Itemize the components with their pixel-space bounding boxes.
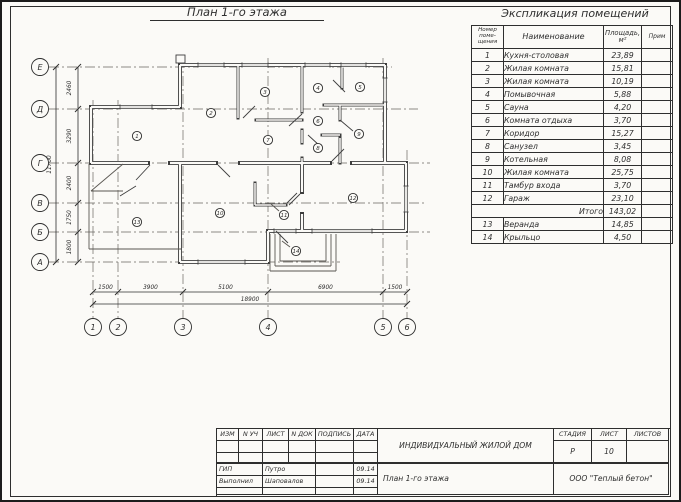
- room-name-cell: Гараж: [504, 192, 604, 205]
- dim-col-total: 18900: [241, 297, 260, 303]
- tb-empty: [354, 488, 378, 495]
- tb-empty: [354, 441, 378, 453]
- dim-col-3: 6900: [318, 285, 333, 291]
- tb-empty: [239, 453, 263, 463]
- room-number-cell: 10: [472, 166, 504, 179]
- dim-row-3: 1750: [67, 210, 73, 225]
- room-note-cell: [642, 218, 673, 231]
- room-name-cell: Жилая комната: [504, 62, 604, 75]
- room-name-cell: Жилая комната: [504, 166, 604, 179]
- room-number-cell: 6: [472, 114, 504, 127]
- dim-row-1: 3290: [67, 128, 73, 143]
- room-note-cell: [642, 101, 673, 114]
- tb-sheet-value: 10: [592, 441, 627, 463]
- axis-label-col: 4: [265, 323, 270, 332]
- room-note-cell: [642, 140, 673, 153]
- explication-row: 9Котельная8,08: [472, 153, 673, 166]
- room-number: 12: [350, 196, 357, 202]
- room-area-cell: 3,45: [604, 140, 642, 153]
- tb-empty: [316, 453, 354, 463]
- room-number: 2: [209, 111, 213, 117]
- room-name-cell: Веранда: [504, 218, 604, 231]
- room-name-cell: Коридор: [504, 127, 604, 140]
- tb-sheets-value: [627, 441, 669, 463]
- room-note-cell: [642, 153, 673, 166]
- tb-date-2: 09.14: [354, 476, 378, 488]
- room-number: 7: [266, 138, 270, 144]
- room-name-cell: Котельная: [504, 153, 604, 166]
- dimensions: 2460329024001750180011700150039005100690…: [47, 64, 410, 307]
- header-room-number: Номер поме- щения: [472, 26, 504, 49]
- tb-empty: [263, 453, 289, 463]
- room-area-cell: 3,70: [604, 179, 642, 192]
- tb-date-1: 09.14: [354, 463, 378, 476]
- room-area-cell: 5,88: [604, 88, 642, 101]
- room-number-cell: 9: [472, 153, 504, 166]
- room-note-cell: [642, 114, 673, 127]
- tb-empty: [316, 441, 354, 453]
- tb-role-2: Выполнил: [217, 476, 263, 488]
- room-area-cell: 14,85: [604, 218, 642, 231]
- title-block: ИЗМ N УЧ ЛИСТ N ДОК ПОДПИСЬ ДАТА ИНДИВИД…: [216, 428, 671, 497]
- tb-col-izm: ИЗМ: [217, 429, 239, 441]
- tb-col-sheets: ЛИСТОВ: [627, 429, 669, 441]
- room-area-cell: 15,81: [604, 62, 642, 75]
- room-number: 5: [358, 85, 362, 91]
- axis-label-row: Г: [38, 159, 43, 168]
- explication-total-row: Итого143,02: [472, 205, 673, 218]
- axis-label-row: Б: [37, 228, 43, 237]
- room-area-cell: 4,50: [604, 231, 642, 244]
- explication-row: 1Кухня-столовая23,89: [472, 49, 673, 62]
- explication-title: Экспликация помещений: [478, 7, 672, 20]
- room-number-cell: 3: [472, 75, 504, 88]
- room-number: 13: [134, 220, 141, 226]
- total-label: Итого: [472, 205, 604, 218]
- tb-col-podpis: ПОДПИСЬ: [316, 429, 354, 441]
- room-note-cell: [642, 62, 673, 75]
- explication-row: 3Жилая комната10,19: [472, 75, 673, 88]
- tb-sign-1: [316, 463, 354, 476]
- room-number: 1: [135, 134, 139, 140]
- tb-empty: [263, 488, 316, 495]
- tb-col-sheet: ЛИСТ: [592, 429, 627, 441]
- tb-col-ndok: N ДОК: [289, 429, 316, 441]
- room-number: 3: [263, 90, 267, 96]
- room-number-cell: 5: [472, 101, 504, 114]
- room-name-cell: Тамбур входа: [504, 179, 604, 192]
- axis-label-col: 2: [115, 323, 120, 332]
- room-number: 4: [316, 86, 320, 92]
- explication-row: 6Комната отдыха3,70: [472, 114, 673, 127]
- tb-name-2: Шаповалов: [263, 476, 316, 488]
- room-area-cell: 4,20: [604, 101, 642, 114]
- room-area-cell: 10,19: [604, 75, 642, 88]
- tb-col-stage: СТАДИЯ: [554, 429, 592, 441]
- room-name-cell: Санузел: [504, 140, 604, 153]
- room-note-cell: [642, 49, 673, 62]
- room-name-cell: Кухня-столовая: [504, 49, 604, 62]
- explication-row: 7Коридор15,27: [472, 127, 673, 140]
- tb-empty: [263, 441, 289, 453]
- axis-label-row: А: [36, 258, 42, 267]
- tb-empty: [217, 453, 239, 463]
- room-note-cell: [642, 192, 673, 205]
- tb-stage-value: Р: [554, 441, 592, 463]
- room-area-cell: 3,70: [604, 114, 642, 127]
- tb-empty: [239, 441, 263, 453]
- room-name-cell: Сауна: [504, 101, 604, 114]
- axis-label-col: 3: [180, 323, 185, 332]
- tb-empty: [316, 488, 354, 495]
- tb-empty: [289, 441, 316, 453]
- room-number: 11: [281, 213, 288, 219]
- room-name-cell: Жилая комната: [504, 75, 604, 88]
- explication-row: 13Веранда14,85: [472, 218, 673, 231]
- room-note-cell: [642, 231, 673, 244]
- room-area-cell: 23,89: [604, 49, 642, 62]
- axis-label-row: В: [37, 199, 43, 208]
- tb-project-name: ИНДИВИДУАЛЬНЫЙ ЖИЛОЙ ДОМ: [378, 429, 554, 463]
- tb-col-data: ДАТА: [354, 429, 378, 441]
- explication-row: 11Тамбур входа3,70: [472, 179, 673, 192]
- room-number: 10: [217, 211, 224, 217]
- explication-row: 2Жилая комната15,81: [472, 62, 673, 75]
- tb-sign-2: [316, 476, 354, 488]
- tb-empty: [289, 453, 316, 463]
- room-note-cell: [642, 75, 673, 88]
- tb-empty: [354, 453, 378, 463]
- dim-row-0: 2460: [67, 80, 73, 95]
- tb-role-1: ГИП: [217, 463, 263, 476]
- explication-table: Номер поме- щения Наименование Площадь, …: [471, 25, 673, 244]
- axis-label-col: 1: [90, 323, 95, 332]
- tb-sheet-title: План 1-го этажа: [378, 463, 554, 495]
- axis-label-row: Д: [36, 105, 43, 114]
- room-number-cell: 2: [472, 62, 504, 75]
- tb-company: ООО "Теплый бетон": [554, 463, 669, 495]
- axis-label-col: 5: [380, 323, 385, 332]
- explication-row: 4Помывочная5,88: [472, 88, 673, 101]
- tb-col-nuch: N УЧ: [239, 429, 263, 441]
- room-note-cell: [642, 88, 673, 101]
- room-area-cell: 25,75: [604, 166, 642, 179]
- tb-col-list: ЛИСТ: [263, 429, 289, 441]
- room-number-cell: 4: [472, 88, 504, 101]
- room-number: 6: [316, 119, 320, 125]
- dim-row-2: 2400: [67, 175, 73, 190]
- header-room-name: Наименование: [504, 26, 604, 49]
- header-room-note: Прим: [642, 26, 673, 49]
- header-room-area: Площадь, м²: [604, 26, 642, 49]
- tb-name-1: Путро: [263, 463, 316, 476]
- explication-row: 5Сауна4,20: [472, 101, 673, 114]
- plan-title: План 1-го этажа: [150, 5, 324, 21]
- dim-col-0: 1500: [98, 285, 113, 291]
- explication-row: 12Гараж23,10: [472, 192, 673, 205]
- room-note-cell: [642, 166, 673, 179]
- room-number-cell: 7: [472, 127, 504, 140]
- room-number: 8: [316, 146, 320, 152]
- room-number-cell: 1: [472, 49, 504, 62]
- dim-row-4: 1800: [67, 239, 73, 254]
- explication-header-row: Номер поме- щения Наименование Площадь, …: [472, 26, 673, 49]
- tb-empty: [217, 441, 239, 453]
- room-number-cell: 14: [472, 231, 504, 244]
- tb-empty: [217, 488, 263, 495]
- room-number: 9: [357, 132, 361, 138]
- total-note: [642, 205, 673, 218]
- dim-col-2: 5100: [218, 285, 233, 291]
- total-area: 143,02: [604, 205, 642, 218]
- dim-col-4: 1500: [388, 285, 403, 291]
- drawing-sheet: 2460329024001750180011700150039005100690…: [0, 0, 681, 502]
- dim-col-1: 3900: [143, 285, 158, 291]
- room-number-cell: 8: [472, 140, 504, 153]
- room-note-cell: [642, 127, 673, 140]
- room-name-cell: Помывочная: [504, 88, 604, 101]
- room-number-cell: 12: [472, 192, 504, 205]
- explication-row: 8Санузел3,45: [472, 140, 673, 153]
- room-name-cell: Комната отдыха: [504, 114, 604, 127]
- room-area-cell: 8,08: [604, 153, 642, 166]
- room-note-cell: [642, 179, 673, 192]
- room-name-cell: Крыльцо: [504, 231, 604, 244]
- explication-row: 10Жилая комната25,75: [472, 166, 673, 179]
- explication-row: 14Крыльцо4,50: [472, 231, 673, 244]
- room-number: 14: [293, 249, 300, 255]
- room-number-cell: 13: [472, 218, 504, 231]
- room-area-cell: 23,10: [604, 192, 642, 205]
- axis-label-col: 6: [404, 323, 409, 332]
- room-area-cell: 15,27: [604, 127, 642, 140]
- room-number-cell: 11: [472, 179, 504, 192]
